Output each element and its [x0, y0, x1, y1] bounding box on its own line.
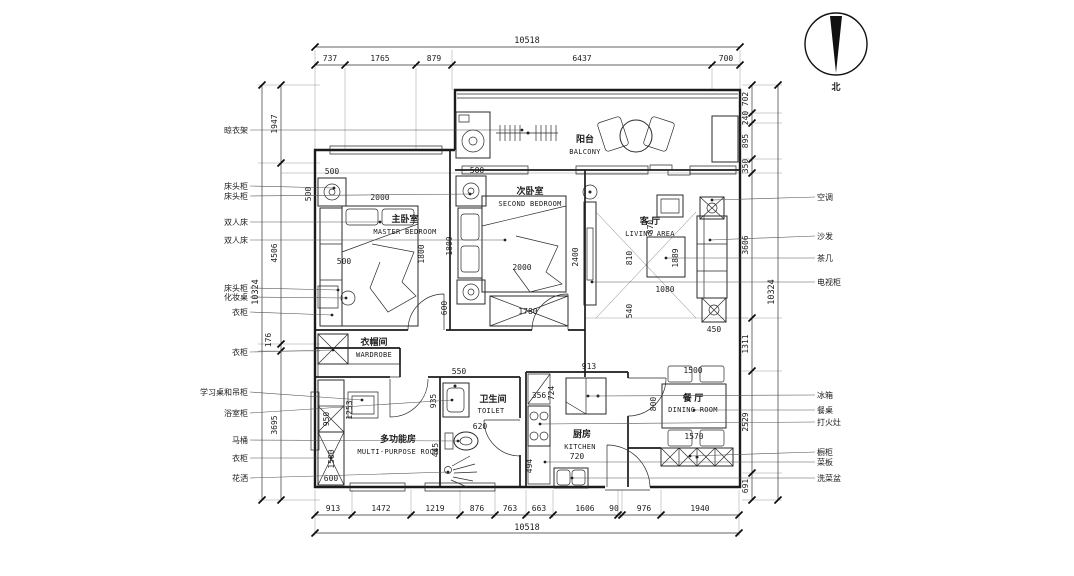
dim-label: 691 [741, 479, 750, 494]
dim-label: 1606 [575, 504, 594, 513]
second-bedroom-furniture [456, 176, 568, 326]
callout-label: 茶几 [817, 253, 833, 263]
room-label-toilet-zh: 卫生间 [479, 393, 506, 404]
callout: 浴室柜 [224, 399, 453, 418]
floor-plan-drawing: 10518 737 1765 879 6437 700 913 1472 121… [0, 0, 1074, 576]
dim-label: 500 [325, 167, 340, 176]
dim-label: 540 [625, 304, 634, 319]
door-toilet [484, 420, 520, 456]
callout: 衣柜 [232, 453, 332, 463]
dim-label: 1219 [425, 504, 444, 513]
callout: 空调 [711, 192, 833, 202]
dim-label: 550 [452, 367, 467, 376]
callout-label: 电视柜 [817, 277, 841, 287]
dim-label: 240 [741, 111, 750, 126]
room-label-multi-en: MULTI-PURPOSE ROOM [357, 448, 438, 456]
dim-label: 870 [646, 220, 655, 235]
dim-label: 3606 [741, 235, 750, 254]
dim-label: 1311 [741, 334, 750, 353]
callout-label: 打火灶 [817, 417, 841, 427]
callout: 冰箱 [587, 390, 833, 400]
callout: 床头柜 [224, 191, 471, 201]
dim-label: 913 [326, 504, 341, 513]
callout-label: 双人床 [224, 217, 248, 227]
dim-label: 1500 [683, 366, 702, 375]
room-label-balcony-en: BALCONY [569, 148, 601, 156]
callout: 洗菜盆 [571, 473, 841, 483]
dim-label: 720 [570, 452, 585, 461]
tv [587, 228, 593, 280]
callout-label: 床头柜 [224, 181, 248, 191]
dim-right-total: 10324 [767, 279, 777, 305]
double-bed-master [342, 206, 418, 326]
room-label-master-zh: 主卧室 [391, 213, 418, 224]
dim-label: 1940 [690, 504, 709, 513]
dim-label: 600 [440, 301, 449, 316]
room-labels: 阳台 BALCONY 主卧室 MASTER BEDROOM 次卧室 SECOND… [356, 133, 718, 456]
callout-label: 餐桌 [817, 405, 833, 415]
washing-machine [456, 112, 490, 158]
callout-label: 橱柜 [817, 447, 833, 457]
callout: 马桶 [232, 435, 459, 445]
callout-label: 菜板 [817, 457, 833, 467]
dim-label: 913 [582, 362, 597, 371]
dim-label: 2000 [512, 263, 531, 272]
dim-label: 702 [741, 92, 750, 107]
callout-label: 床头柜 [224, 191, 248, 201]
dim-label: 950 [322, 412, 331, 427]
dim-label: 1080 [655, 285, 674, 294]
dim-label: 976 [637, 504, 652, 513]
room-label-dining-zh: 餐 厅 [682, 392, 704, 403]
dim-label: 500 [304, 187, 313, 202]
callout-label: 衣柜 [232, 307, 248, 317]
living-furniture [583, 185, 727, 322]
dim-label: 800 [649, 397, 658, 412]
room-label-wardrobe-zh: 衣帽间 [360, 336, 387, 347]
dim-label: 4506 [270, 243, 279, 262]
wardrobe-band [318, 364, 400, 377]
callout: 打火灶 [539, 417, 841, 427]
dim-label: 445 [431, 443, 440, 458]
dim-label: 356 [532, 391, 547, 400]
dim-label: 450 [707, 325, 722, 334]
room-label-master-en: MASTER BEDROOM [373, 228, 436, 236]
room-label-kitchen-zh: 厨房 [573, 428, 591, 439]
room-label-balcony-zh: 阳台 [576, 133, 594, 144]
north-needle-icon [830, 16, 842, 73]
sofa [697, 216, 727, 298]
dim-label: 1780 [518, 307, 537, 316]
callout-label: 衣柜 [232, 347, 248, 357]
dim-label: 876 [470, 504, 485, 513]
dim-label: 90 [609, 504, 619, 513]
door-kitchen [628, 378, 666, 416]
dim-label: 2400 [571, 247, 580, 266]
compass-label: 北 [831, 81, 840, 92]
callout: 双人床 [224, 217, 381, 227]
dim-label: 1800 [445, 236, 454, 255]
callout-label: 浴室柜 [224, 408, 248, 418]
dim-label: 1472 [371, 504, 390, 513]
dim-label: 176 [264, 333, 273, 348]
dim-label: 500 [337, 257, 352, 266]
dim-top-total: 10518 [514, 36, 540, 46]
dim-label: 2529 [741, 412, 750, 431]
callout-label: 床头柜 [224, 283, 248, 293]
dim-label: 1570 [684, 432, 703, 441]
dim-left-total: 10324 [251, 279, 261, 305]
callout-label: 晾衣架 [224, 125, 248, 135]
callout-label: 衣柜 [232, 453, 248, 463]
dining-chair [700, 366, 724, 382]
dim-label: 724 [547, 386, 556, 401]
balcony-furniture [456, 112, 675, 158]
dressing-table [318, 286, 338, 308]
callout: 电视柜 [591, 277, 841, 287]
inner-dimensions: 500 500 2000 1800 500 500 1800 2000 600 … [304, 166, 721, 483]
gas-stove [528, 406, 550, 446]
dim-label: 737 [323, 54, 338, 63]
callout: 橱柜 [689, 447, 833, 457]
dim-label: 1800 [417, 244, 426, 263]
callout-label: 洗菜盆 [817, 473, 841, 483]
dim-label: 1765 [370, 54, 389, 63]
dim-label: 763 [503, 504, 518, 513]
room-label-second-en: SECOND BEDROOM [498, 200, 561, 208]
room-label-toilet-en: TOILET [477, 407, 505, 415]
room-label-kitchen-en: KITCHEN [564, 443, 596, 451]
callout: 花洒 [232, 471, 449, 483]
callout-label: 学习桌和吊柜 [200, 387, 248, 397]
dimension-chain-bottom: 913 1472 1219 876 763 663 1606 90 976 19… [312, 504, 743, 537]
nightstand [457, 280, 485, 304]
callout: 晾衣架 [224, 125, 523, 135]
dim-label: 810 [625, 251, 634, 266]
callout-label: 冰箱 [817, 390, 833, 400]
dim-label: 494 [525, 459, 534, 474]
callout-label: 空调 [817, 192, 833, 202]
dim-label: 2000 [370, 193, 389, 202]
dim-label: 3695 [270, 415, 279, 434]
dim-label: 700 [719, 54, 734, 63]
callout: 学习桌和吊柜 [200, 387, 363, 401]
duct-column [712, 116, 738, 162]
floor-plan-canvas: 10518 737 1765 879 6437 700 913 1472 121… [0, 0, 1074, 576]
dining-furniture [661, 366, 733, 466]
callout-label: 沙发 [817, 231, 833, 241]
callout-label: 花洒 [232, 473, 248, 483]
callout-label: 化妆桌 [224, 292, 248, 302]
compass: 北 [805, 13, 867, 92]
callout-label: 双人床 [224, 235, 248, 245]
dim-bottom-total: 10518 [514, 523, 540, 533]
dim-label: 1253 [345, 400, 354, 419]
dim-label: 1947 [270, 114, 279, 133]
callout-label: 马桶 [232, 435, 248, 445]
dim-label: 6437 [572, 54, 591, 63]
callout: 床头柜 [224, 181, 335, 191]
balcony-table [620, 120, 652, 152]
dimension-chain-right: 702 240 895 350 3606 1311 2529 691 10324 [741, 82, 782, 504]
callout: 床头柜 [224, 283, 339, 293]
room-label-wardrobe-en: WARDROBE [356, 351, 392, 359]
dim-label: 350 [741, 159, 750, 174]
master-bedroom-furniture [318, 178, 418, 326]
dim-label: 879 [427, 54, 442, 63]
door-master [408, 294, 444, 330]
door-multi-purpose [390, 379, 428, 417]
dim-label: 500 [470, 166, 485, 175]
dim-label: 895 [741, 134, 750, 149]
room-label-multi-zh: 多功能房 [380, 433, 416, 444]
callout: 化妆桌 [224, 292, 347, 302]
room-label-second-zh: 次卧室 [516, 185, 543, 196]
nightstand [318, 178, 346, 206]
bedside-cabinet-strip [458, 208, 482, 278]
callout: 衣柜 [232, 307, 333, 317]
dim-label: 620 [473, 422, 488, 431]
dim-label: 663 [532, 504, 547, 513]
dimension-chain-top: 10518 737 1765 879 6437 700 [312, 36, 744, 69]
